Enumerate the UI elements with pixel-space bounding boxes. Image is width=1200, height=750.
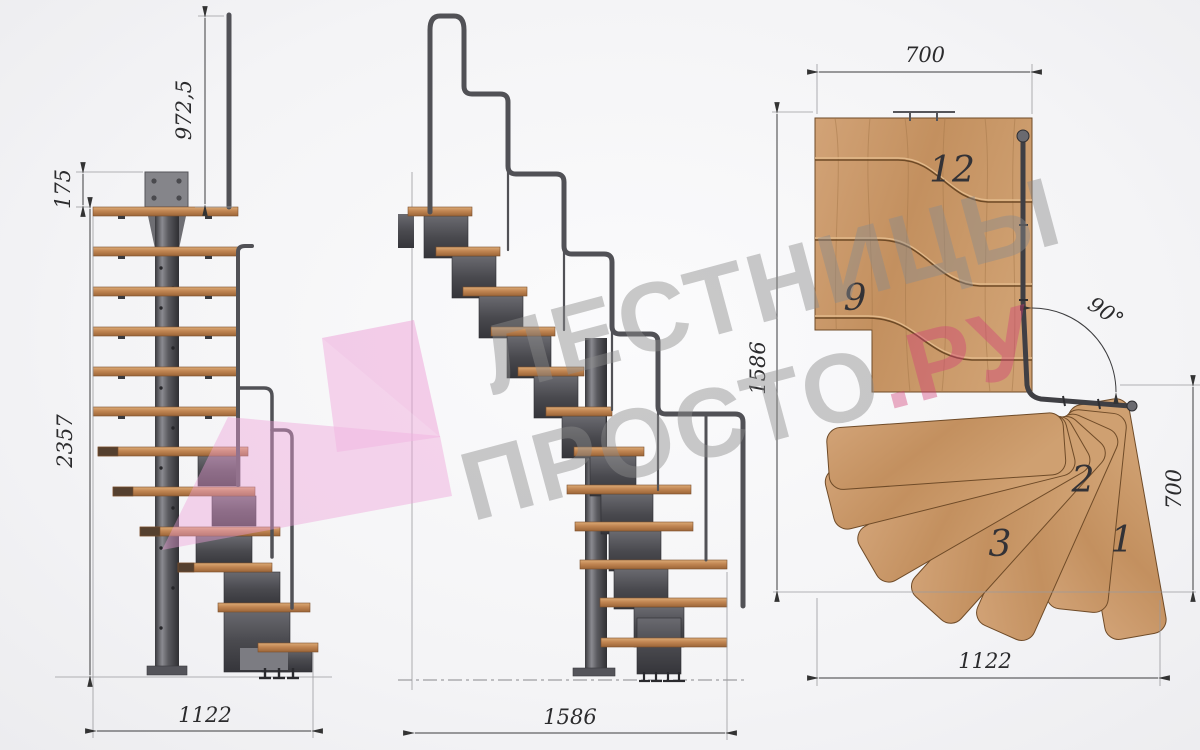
tread-label-1: 1 — [1111, 520, 1134, 561]
staircase-technical-drawing: 972,5 175 2357 1122 — [0, 0, 1200, 750]
side-elevation-view: 972,5 175 2357 1122 — [51, 15, 332, 738]
tread-label-3: 3 — [989, 524, 1012, 565]
tread-label-2: 2 — [1071, 460, 1095, 501]
front-column-foot — [573, 668, 615, 676]
dim-plan-angle: 90° — [1084, 292, 1128, 332]
dim-front-length: 1586 — [543, 705, 596, 729]
dim-side-total-height: 2357 — [53, 414, 77, 469]
top-bracket — [398, 214, 414, 248]
dim-side-plate: 175 — [51, 169, 75, 209]
dim-side-width: 1122 — [178, 703, 231, 727]
module-feet — [259, 668, 299, 678]
watermark-arrow — [162, 320, 452, 550]
drawing-canvas: 972,5 175 2357 1122 — [0, 0, 1200, 750]
dim-plan-bottom: 1122 — [958, 649, 1011, 673]
central-column — [147, 216, 187, 675]
dim-plan-right: 700 — [1162, 469, 1186, 509]
dim-plan-top: 700 — [905, 43, 945, 67]
wall-plate — [145, 172, 188, 207]
dim-side-rail-height: 972,5 — [172, 80, 196, 140]
